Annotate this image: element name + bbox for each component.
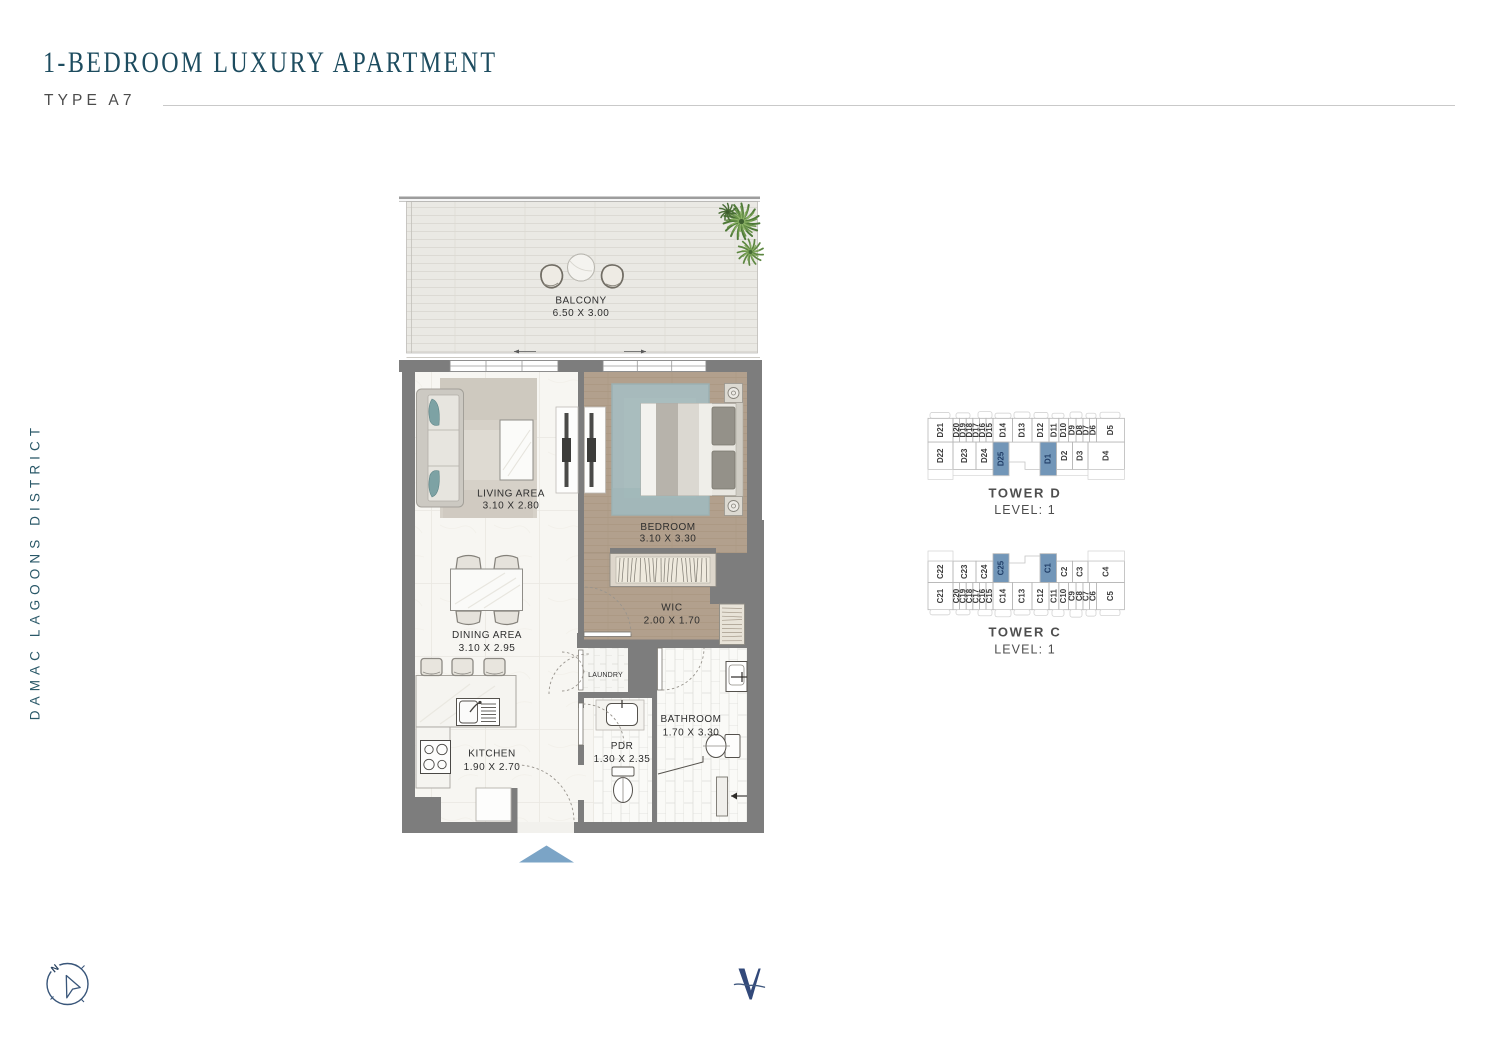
svg-text:C2: C2 [1060,566,1069,577]
svg-text:LEVEL: 1: LEVEL: 1 [994,643,1056,657]
svg-text:C3: C3 [1076,566,1085,577]
svg-text:C23: C23 [960,564,969,579]
svg-text:1.90 X 2.70: 1.90 X 2.70 [464,762,521,773]
svg-text:KITCHEN: KITCHEN [468,749,515,760]
svg-text:LAUNDRY: LAUNDRY [588,672,623,679]
svg-text:C25: C25 [997,560,1006,575]
svg-text:D22: D22 [936,448,945,463]
svg-text:3.10 X 2.95: 3.10 X 2.95 [459,643,516,654]
svg-text:C1: C1 [1044,562,1053,573]
svg-text:LEVEL: 1: LEVEL: 1 [994,503,1056,517]
svg-text:D21: D21 [936,422,945,437]
svg-text:DINING AREA: DINING AREA [452,630,522,641]
svg-text:D1: D1 [1044,453,1053,464]
svg-text:C13: C13 [1018,588,1027,603]
svg-text:3.10 X 2.80: 3.10 X 2.80 [483,501,540,512]
svg-text:1.70 X 3.30: 1.70 X 3.30 [663,728,720,739]
svg-text:BALCONY: BALCONY [555,296,606,307]
svg-text:C15: C15 [985,588,994,603]
svg-text:C21: C21 [936,588,945,603]
svg-text:2.00 X 1.70: 2.00 X 1.70 [644,616,701,627]
svg-text:D4: D4 [1102,450,1111,461]
svg-text:D25: D25 [997,451,1006,466]
svg-text:C24: C24 [980,564,989,579]
svg-text:D5: D5 [1106,425,1115,436]
svg-text:3.10 X 3.30: 3.10 X 3.30 [640,534,697,545]
svg-text:D3: D3 [1076,450,1085,461]
svg-text:TOWER D: TOWER D [988,486,1061,501]
svg-text:D12: D12 [1036,422,1045,437]
svg-text:D24: D24 [980,448,989,463]
svg-text:BATHROOM: BATHROOM [660,714,721,725]
svg-text:TOWER C: TOWER C [988,625,1061,640]
svg-text:PDR: PDR [611,741,634,752]
svg-text:6.50 X 3.00: 6.50 X 3.00 [553,308,610,319]
svg-text:D23: D23 [960,448,969,463]
svg-text:D15: D15 [985,422,994,437]
svg-text:D6: D6 [1089,425,1098,436]
svg-text:LIVING AREA: LIVING AREA [477,489,545,500]
svg-text:BEDROOM: BEDROOM [640,522,695,533]
svg-text:C22: C22 [936,564,945,579]
svg-text:C5: C5 [1106,590,1115,601]
svg-text:D13: D13 [1018,422,1027,437]
svg-text:1.30 X 2.35: 1.30 X 2.35 [594,754,651,765]
svg-text:C11: C11 [1049,588,1058,603]
svg-text:D2: D2 [1060,450,1069,461]
svg-text:D14: D14 [998,422,1007,437]
svg-text:C14: C14 [998,588,1007,603]
svg-text:WIC: WIC [661,603,683,614]
svg-text:D11: D11 [1049,423,1058,438]
svg-text:C4: C4 [1102,566,1111,577]
svg-text:C6: C6 [1089,590,1098,601]
svg-text:C12: C12 [1036,588,1045,603]
